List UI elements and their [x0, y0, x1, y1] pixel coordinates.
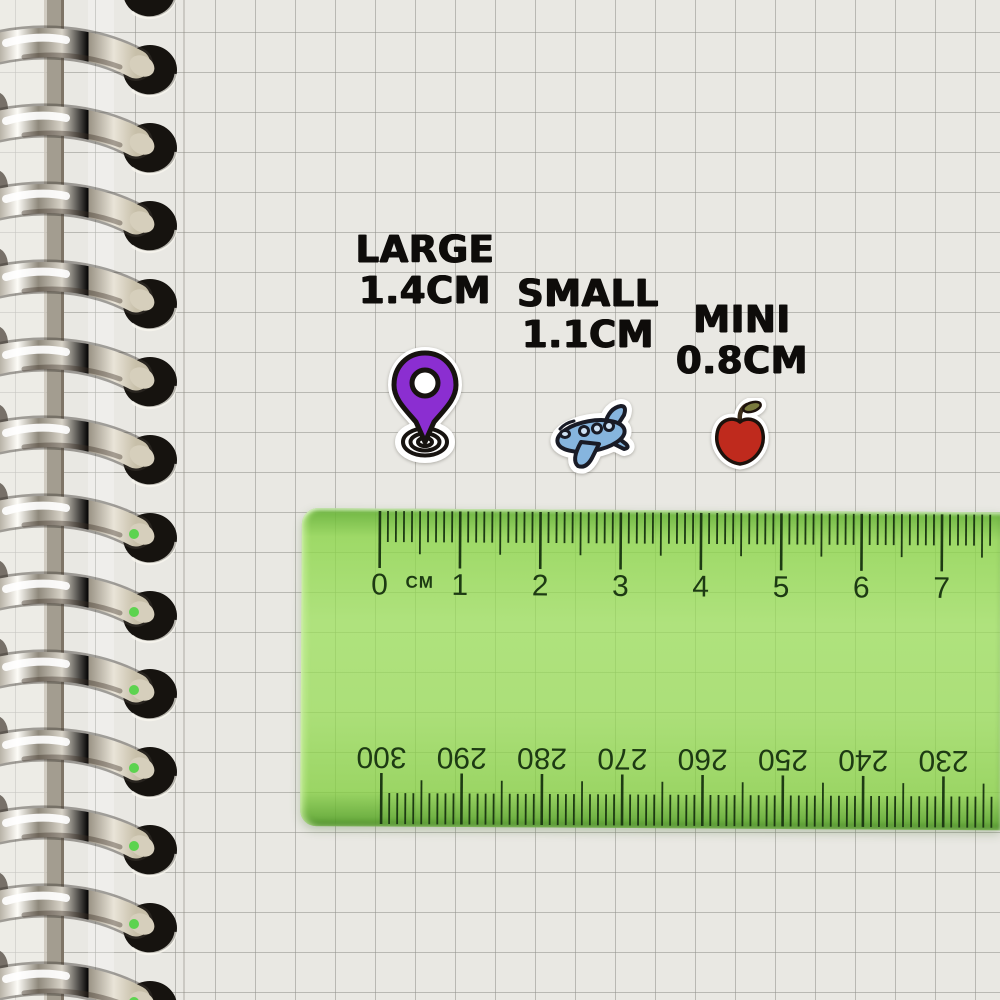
ruler-cm-number: 3 [612, 570, 629, 603]
ruler-mm-number: 250 [758, 743, 808, 776]
ring-green-reflection [129, 841, 139, 851]
size-label-small: SMALL 1.1CM [510, 273, 666, 355]
ruler-cm-number: 5 [773, 571, 790, 604]
ruler-mm-number: 260 [678, 742, 728, 775]
size-label-value: 1.4CM [347, 270, 503, 311]
spiral-binding [0, 0, 210, 1000]
ring-green-reflection [129, 763, 139, 773]
pin-center-hole [412, 370, 438, 396]
ruler-mm-number: 230 [918, 744, 968, 777]
size-label-mini: MINI 0.8CM [664, 299, 820, 381]
ruler-mm-number: 270 [597, 742, 647, 775]
ruler-cm-number: 2 [532, 569, 549, 602]
size-label-large: LARGE 1.4CM [347, 229, 503, 311]
size-label-name: SMALL [510, 273, 666, 314]
ring-green-reflection [129, 607, 139, 617]
top-page-edge [183, 0, 185, 1000]
ruler: 01234567CM300290280270260250240230 [300, 508, 1000, 830]
ruler-mm-number: 300 [356, 740, 406, 773]
ring-green-reflection [129, 529, 139, 539]
apple-body [717, 419, 764, 464]
airplane-sticker [543, 398, 643, 474]
ruler-mm-number: 280 [517, 741, 567, 774]
ruler-mm-number: 240 [838, 743, 888, 776]
ruler-mm-number: 290 [437, 741, 487, 774]
ruler-markings: 01234567CM300290280270260250240230 [300, 508, 1000, 830]
ruler-cm-number: 0 [371, 568, 388, 601]
ring-green-reflection [129, 685, 139, 695]
apple-sticker [707, 398, 773, 472]
ruler-cm-number: 4 [692, 570, 709, 603]
ruler-unit-label: CM [405, 573, 434, 592]
ruler-cm-number: 7 [933, 572, 950, 605]
ruler-cm-number: 1 [451, 569, 468, 602]
size-label-name: MINI [664, 299, 820, 340]
size-label-value: 0.8CM [664, 340, 820, 381]
binding-ring [0, 974, 177, 1000]
photo-scene: LARGE 1.4CM SMALL 1.1CM MINI 0.8CM [0, 0, 1000, 1000]
ring-green-reflection [129, 919, 139, 929]
size-label-name: LARGE [347, 229, 503, 270]
ruler-cm-number: 6 [853, 571, 870, 604]
binding-ring [123, 0, 177, 18]
size-label-value: 1.1CM [510, 314, 666, 355]
location-pin-sticker [383, 346, 467, 464]
